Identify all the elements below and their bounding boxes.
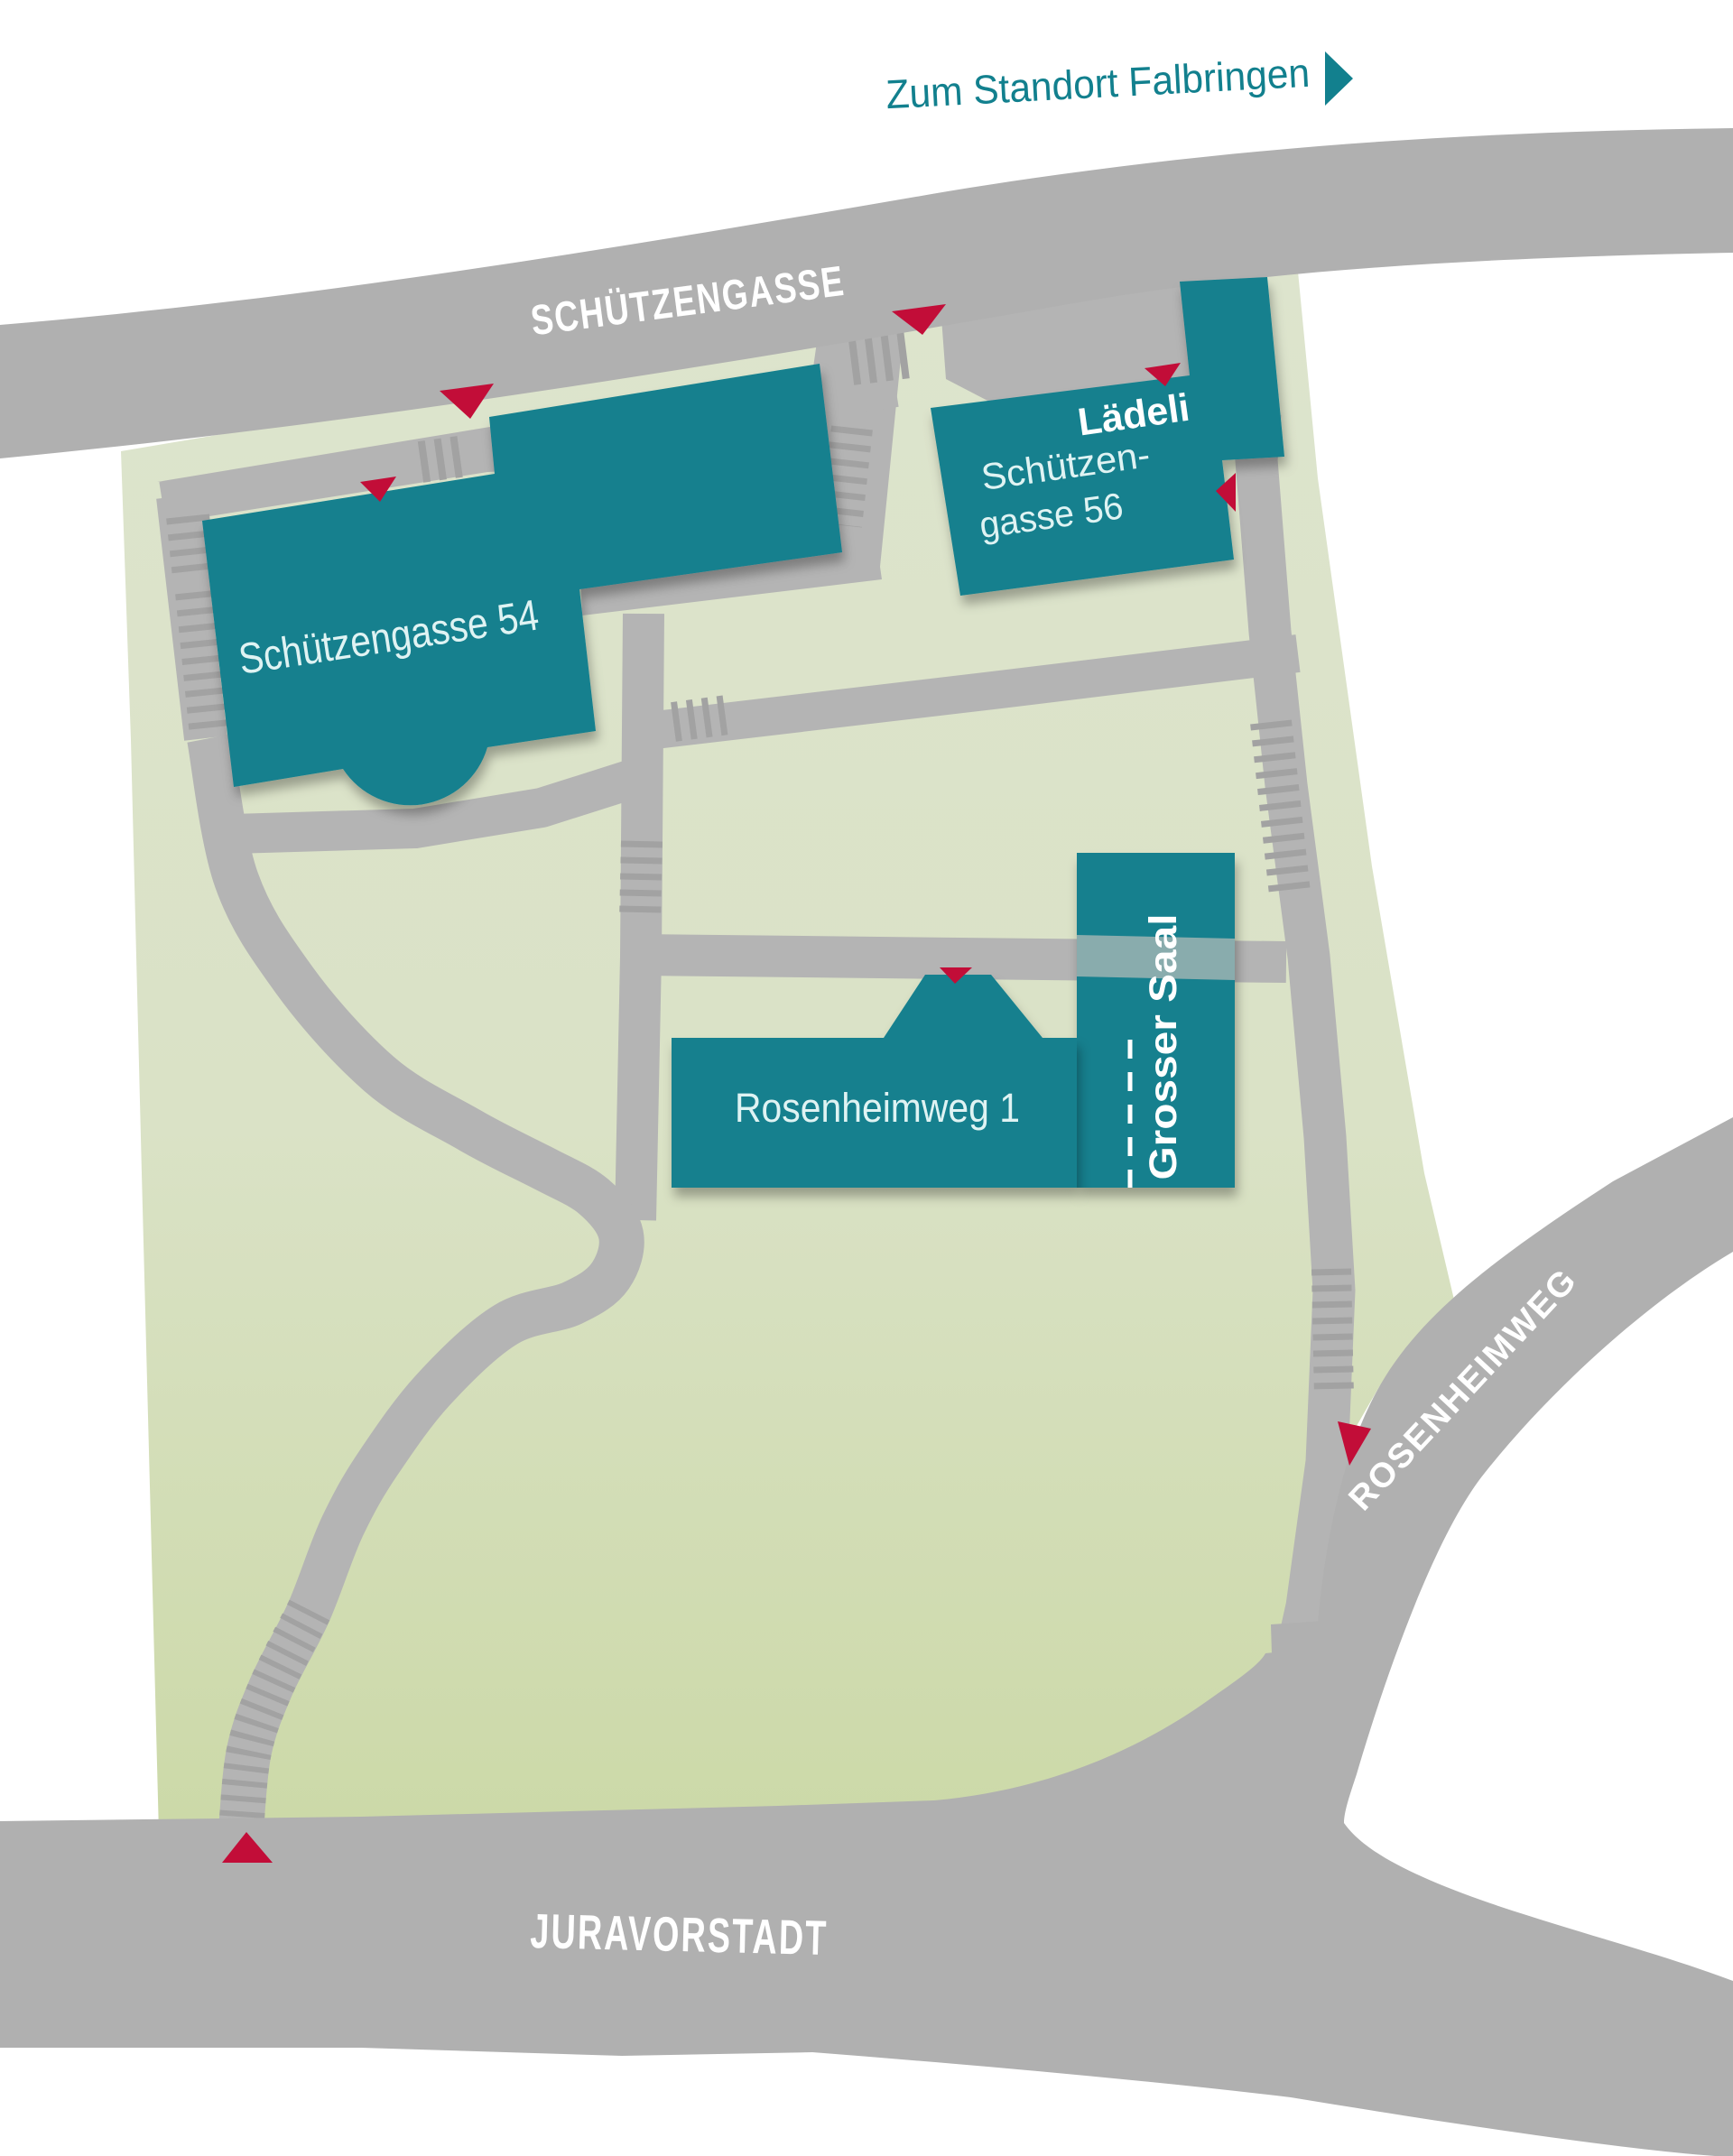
- svg-text:JURAVORSTADT: JURAVORSTADT: [530, 1904, 829, 1966]
- svg-text:Rosenheimweg 1: Rosenheimweg 1: [735, 1085, 1020, 1131]
- svg-text:Grosser Saal: Grosser Saal: [1142, 914, 1185, 1180]
